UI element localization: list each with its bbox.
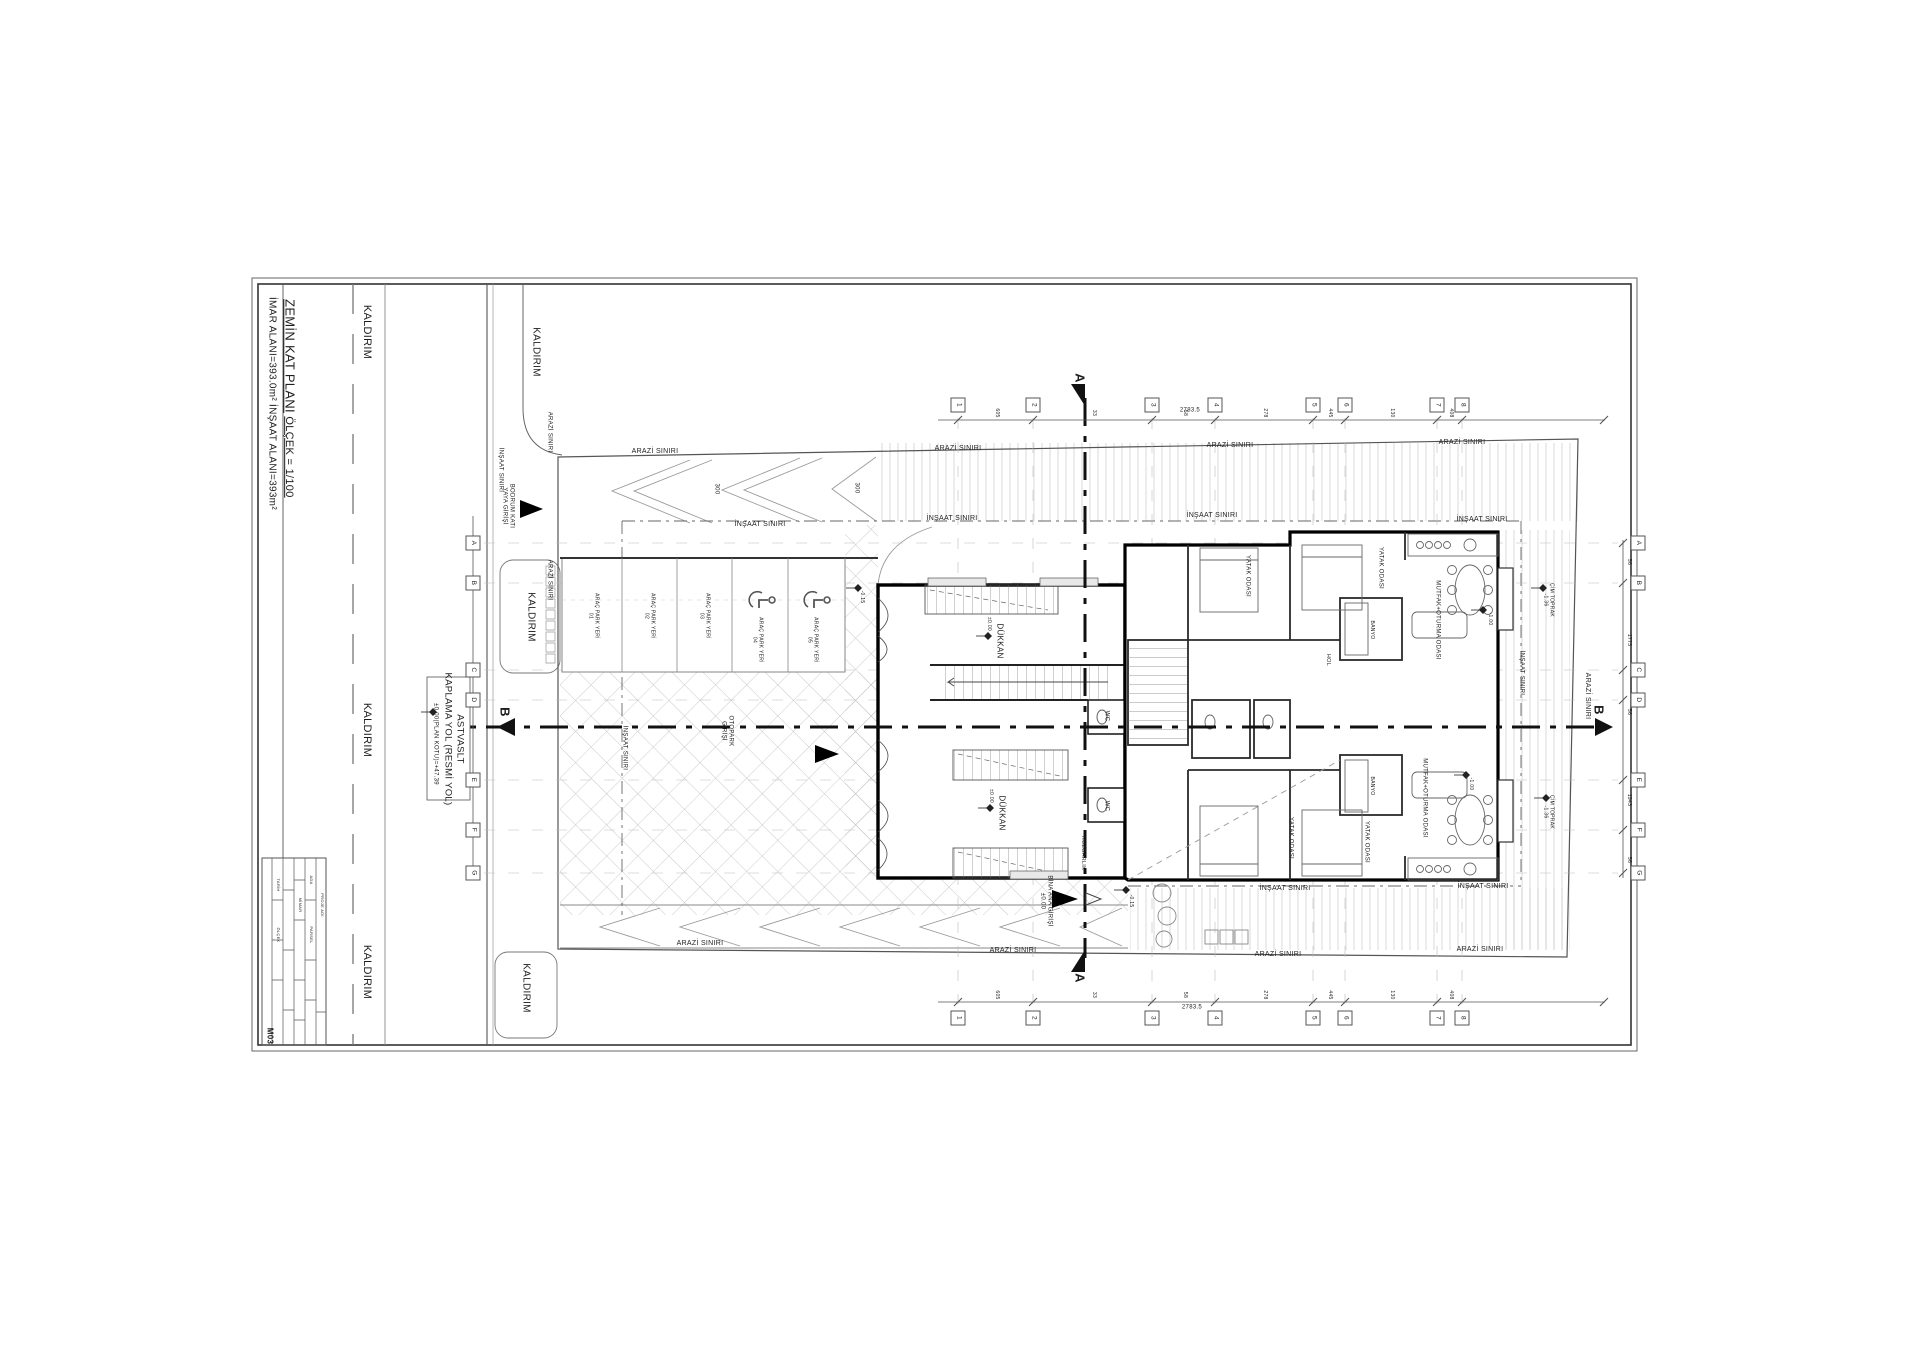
basement-entrance-arrow-icon	[520, 500, 543, 518]
road-label-box	[421, 677, 470, 800]
drawing-sheet: ZEMİN KAT PLANI İMAR ALANI=393.0m² ÖLÇEK…	[0, 0, 1920, 1356]
title-table	[262, 858, 326, 1045]
parking-area	[560, 558, 878, 672]
sidewalk	[495, 560, 560, 1038]
floor-plan-drawing	[0, 0, 1920, 1356]
building-apartments	[1125, 532, 1513, 880]
